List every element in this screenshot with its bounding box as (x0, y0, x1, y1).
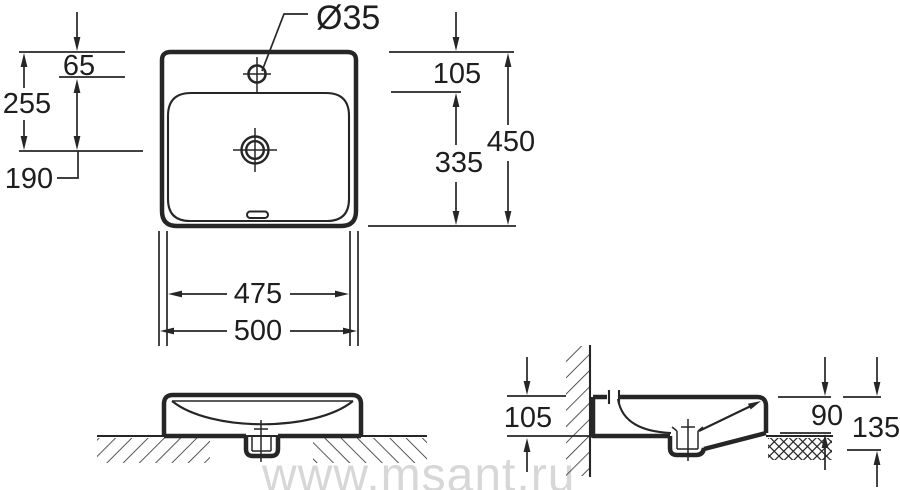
arrow-down-icon (524, 381, 531, 395)
dim-label-wall-side-height: 105 (504, 402, 552, 434)
overflow-slot (247, 212, 268, 219)
side-view-dimensions: 105 90 135 (504, 357, 900, 487)
washbasin-technical-drawing: Ø35 65 255 190 105 335 450 475 500 (0, 0, 900, 490)
dim-label-drain-offset: 190 (5, 163, 53, 195)
dim-label-rim-to-faucet-hole: 65 (63, 50, 95, 82)
dim-label-overall-width: 500 (234, 315, 282, 347)
arrow-up-icon (505, 53, 512, 67)
side-view (566, 345, 833, 477)
dim-label-rim-to-basin-edge: 105 (433, 58, 481, 90)
dim-label-faucet-hole-diameter: Ø35 (316, 0, 380, 37)
dim-label-rim-to-drain: 255 (3, 88, 51, 120)
arrow-down-icon (505, 211, 512, 225)
front-view (97, 395, 427, 463)
arrow-left-icon (168, 291, 182, 298)
arrow-down-icon (453, 211, 460, 225)
drain-trap-side (670, 436, 704, 455)
arrow-up-icon (453, 93, 460, 107)
dim-label-front-edge-height: 90 (811, 400, 843, 432)
arrow-down-icon (74, 37, 81, 51)
dim-label-basin-width: 475 (234, 278, 282, 310)
drain-slope-line (699, 404, 755, 431)
arrow-right-icon (335, 291, 349, 298)
dim-label-basin-inner-depth: 335 (435, 147, 483, 179)
basin-outer-rim (162, 52, 356, 226)
sink-side-sloped-bottom (704, 433, 766, 449)
bowl-curve-front (172, 401, 353, 424)
drain-trap-front (246, 436, 278, 456)
faucet-hole-leader-line (262, 14, 308, 71)
counter-hatch-side (768, 438, 832, 460)
top-view (162, 14, 356, 226)
drawing-page: www.msant.ru (0, 0, 900, 490)
arrow-down-icon (453, 37, 460, 51)
arrow-up-icon (874, 451, 881, 465)
arrow-up-icon (21, 53, 28, 67)
sink-side-left-and-bottom (593, 397, 670, 436)
drain-centerlines (233, 128, 277, 172)
arrow-down-icon (874, 382, 881, 396)
slope-arrow-icon (748, 401, 761, 410)
counter-hatch-right (313, 438, 427, 463)
bowl-curve-side (618, 399, 671, 433)
arrow-up-icon (524, 438, 531, 452)
leader-line-190 (57, 151, 78, 178)
arrow-down-icon (822, 382, 829, 396)
arrow-down-icon (21, 136, 28, 150)
dim-label-overall-depth: 450 (487, 126, 535, 158)
faucet-hole-centerlines (243, 57, 271, 93)
arrow-down-icon (74, 136, 81, 150)
wall-hatch (566, 346, 589, 476)
dim-label-overall-height: 135 (852, 412, 900, 444)
counter-hatch-left (97, 438, 210, 463)
